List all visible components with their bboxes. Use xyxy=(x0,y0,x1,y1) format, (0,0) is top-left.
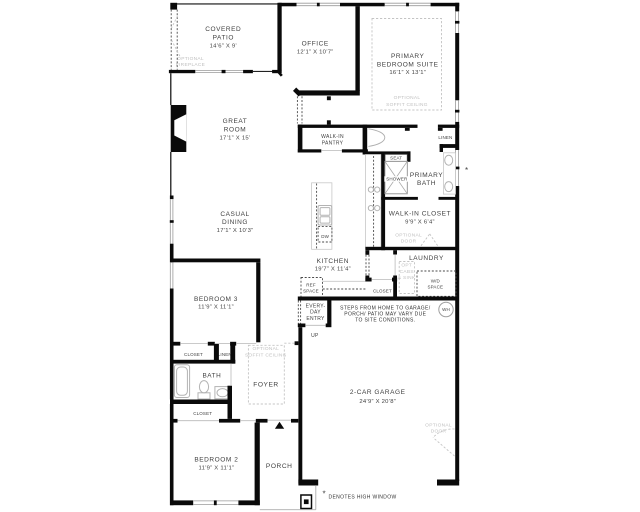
svg-text:OPTIONAL: OPTIONAL xyxy=(252,346,279,352)
svg-text:OPTIONAL: OPTIONAL xyxy=(177,56,204,62)
svg-text:OPTIONAL: OPTIONAL xyxy=(394,95,421,101)
svg-text:PRIMARY: PRIMARY xyxy=(391,53,424,60)
svg-text:11’9” X 11’1”: 11’9” X 11’1” xyxy=(198,305,234,311)
svg-text:DOOR: DOOR xyxy=(431,429,447,435)
svg-text:SPACE: SPACE xyxy=(427,285,443,290)
svg-text:2-CAR GARAGE: 2-CAR GARAGE xyxy=(350,389,406,396)
svg-text:19’7” X 11’4”: 19’7” X 11’4” xyxy=(315,267,351,273)
svg-text:UP: UP xyxy=(311,333,319,339)
svg-text:11’9” X 11’1”: 11’9” X 11’1” xyxy=(199,465,235,471)
svg-text:BATH: BATH xyxy=(417,180,436,187)
svg-text:BEDROOM 3: BEDROOM 3 xyxy=(194,296,238,303)
svg-text:9’9” X 6’4”: 9’9” X 6’4” xyxy=(405,219,435,225)
svg-text:WH: WH xyxy=(442,307,450,312)
svg-text:STEPS FROM HOME TO GARAGE/: STEPS FROM HOME TO GARAGE/ xyxy=(340,305,431,311)
svg-text:SPACE: SPACE xyxy=(303,288,319,293)
svg-text:DENOTES HIGH WINDOW: DENOTES HIGH WINDOW xyxy=(329,495,397,501)
svg-text:17’1” X 10’3”: 17’1” X 10’3” xyxy=(217,228,254,234)
svg-text:LAUNDRY: LAUNDRY xyxy=(409,255,444,262)
svg-text:SHOWER: SHOWER xyxy=(386,177,408,182)
svg-text:OPT: OPT xyxy=(401,263,412,269)
svg-text:OPTIONAL: OPTIONAL xyxy=(425,423,452,429)
svg-text:CLOSET: CLOSET xyxy=(373,288,392,293)
svg-text:DW: DW xyxy=(321,234,329,239)
svg-text:SEAT: SEAT xyxy=(390,156,402,161)
svg-text:& SINK: & SINK xyxy=(398,275,416,281)
svg-text:TO SITE CONDITIONS.: TO SITE CONDITIONS. xyxy=(355,318,415,324)
svg-text:WALK-IN: WALK-IN xyxy=(321,134,344,140)
svg-text:BATH: BATH xyxy=(203,372,222,379)
svg-text:14’6” X 9’: 14’6” X 9’ xyxy=(210,44,237,50)
svg-text:GREAT: GREAT xyxy=(223,118,248,125)
svg-text:CLOSET: CLOSET xyxy=(193,411,212,416)
svg-text:REF: REF xyxy=(306,283,316,288)
svg-text:EVERY-: EVERY- xyxy=(306,304,326,310)
svg-text:DOOR: DOOR xyxy=(401,238,417,244)
svg-text:W/D: W/D xyxy=(431,278,441,283)
svg-text:COVERED: COVERED xyxy=(205,26,241,33)
svg-text:DAY: DAY xyxy=(310,310,321,316)
svg-text:CABS: CABS xyxy=(400,269,414,275)
svg-text:CLOSET: CLOSET xyxy=(184,352,203,357)
svg-text:OPTIONAL: OPTIONAL xyxy=(395,233,422,239)
svg-text:SOFFIT CEILING: SOFFIT CEILING xyxy=(386,102,428,108)
svg-text:PRIMARY: PRIMARY xyxy=(410,172,443,179)
svg-text:LINEN: LINEN xyxy=(218,352,232,357)
svg-text:PATIO: PATIO xyxy=(213,35,234,42)
svg-text:FOYER: FOYER xyxy=(253,382,278,389)
svg-text:WALK-IN CLOSET: WALK-IN CLOSET xyxy=(389,211,451,218)
svg-text:*: * xyxy=(322,489,325,498)
svg-text:16’1” X 13’1”: 16’1” X 13’1” xyxy=(389,70,426,76)
svg-text:SOFFIT CEILING: SOFFIT CEILING xyxy=(245,353,287,359)
svg-text:ROOM: ROOM xyxy=(224,127,246,134)
svg-text:24’9” X 20’8”: 24’9” X 20’8” xyxy=(359,399,396,405)
svg-text:OFFICE: OFFICE xyxy=(302,40,329,47)
svg-text:PORCH: PORCH xyxy=(266,463,293,470)
svg-text:FIREPLACE: FIREPLACE xyxy=(176,62,205,68)
svg-text:CASUAL: CASUAL xyxy=(220,211,249,218)
svg-text:BEDROOM 2: BEDROOM 2 xyxy=(194,456,238,463)
svg-text:DINING: DINING xyxy=(222,219,248,226)
svg-text:KITCHEN: KITCHEN xyxy=(317,258,349,265)
svg-text:PANTRY: PANTRY xyxy=(322,141,344,147)
svg-text:LINEN: LINEN xyxy=(438,135,452,140)
svg-text:*: * xyxy=(465,166,468,175)
svg-text:PORCH/ PATIO MAY VARY DUE: PORCH/ PATIO MAY VARY DUE xyxy=(344,311,426,317)
svg-text:BEDROOM SUITE: BEDROOM SUITE xyxy=(377,61,439,68)
svg-text:ENTRY: ENTRY xyxy=(306,316,325,322)
svg-text:17’1” X 15’: 17’1” X 15’ xyxy=(220,136,251,142)
svg-text:12’1” X 10’7”: 12’1” X 10’7” xyxy=(297,49,334,55)
